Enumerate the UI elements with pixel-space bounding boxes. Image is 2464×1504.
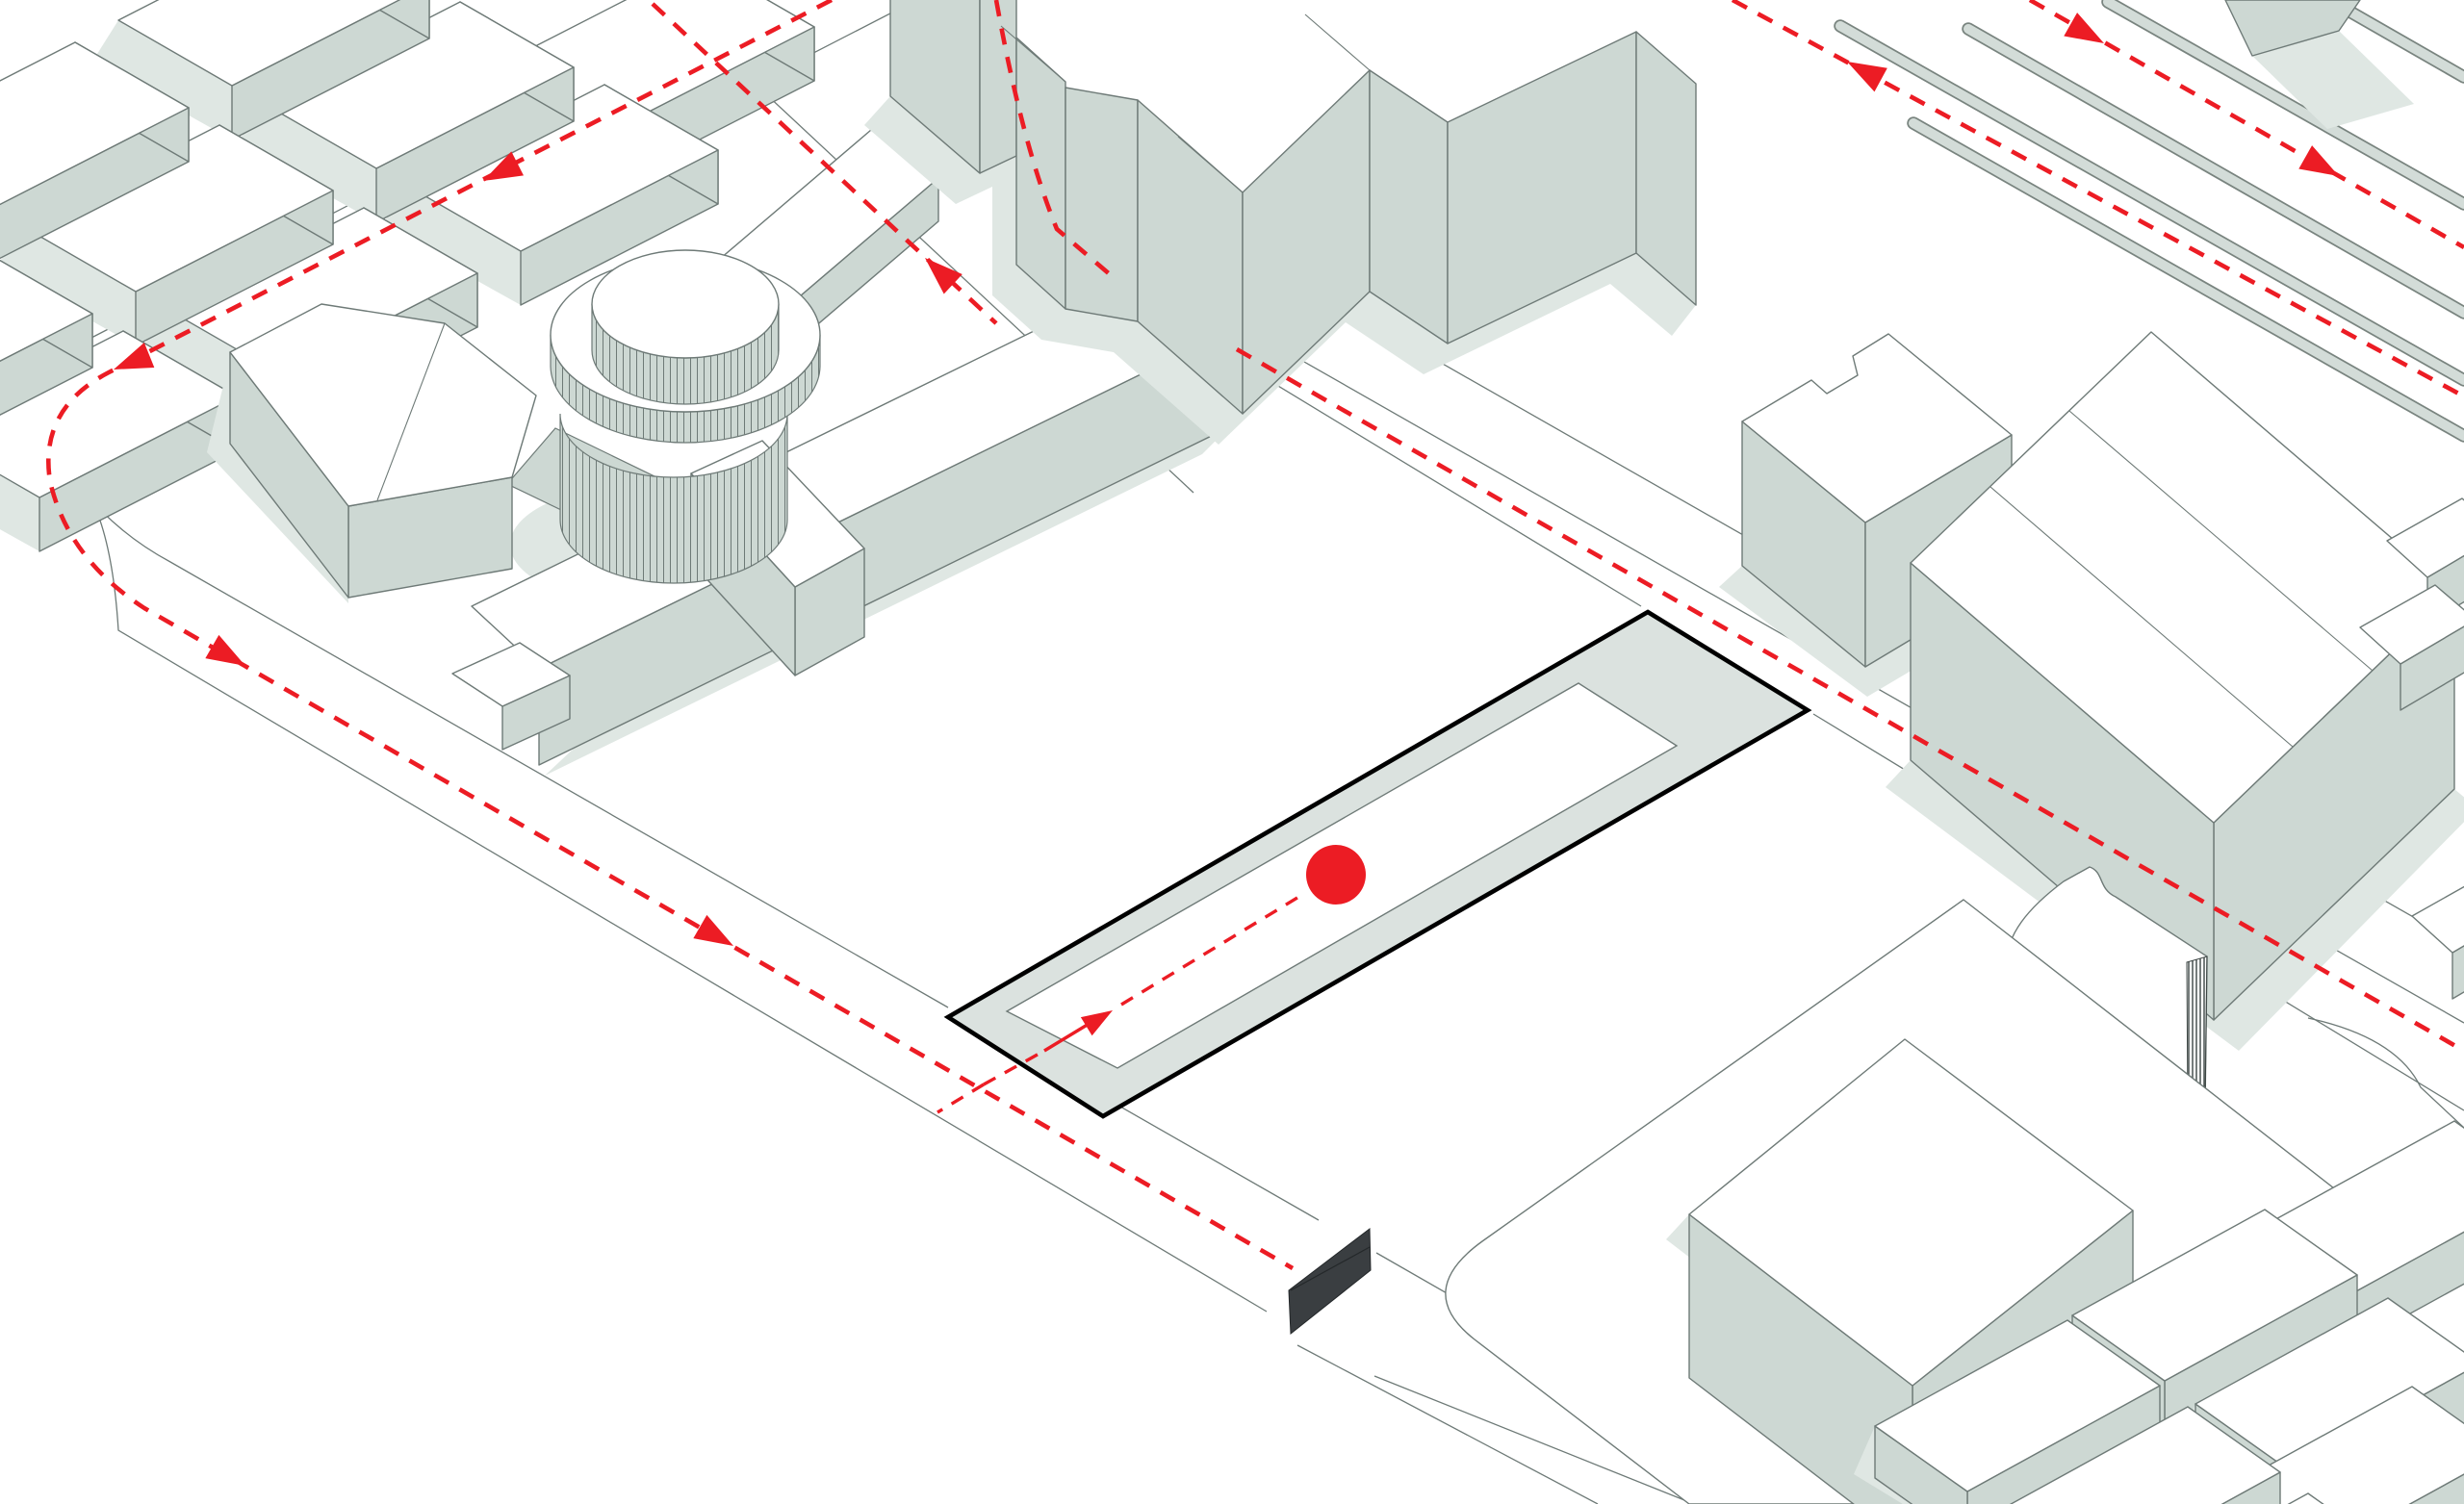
drum-upper-cylinder-top	[592, 250, 779, 358]
site-plan-canvas	[0, 0, 2464, 1504]
strip-2	[1968, 29, 2464, 313]
se-district-bend	[2308, 1018, 2464, 1128]
red-dot-site-marker	[1306, 845, 1366, 905]
road-c-nw-edge-se-segment	[1107, 1099, 1319, 1220]
direction-arrow-icon	[205, 635, 252, 677]
pyramid-roof-building	[2225, 0, 2414, 129]
highlighted-site-parcel	[948, 612, 1808, 1116]
direction-arrow-icon	[2298, 145, 2346, 188]
direction-arrow-icon	[2064, 13, 2111, 55]
entry-wedge-marker	[1289, 1229, 1371, 1334]
theatre-west-wing	[230, 304, 536, 598]
axonometric-site-diagram	[0, 0, 2464, 1504]
direction-arrow-icon	[693, 915, 740, 957]
